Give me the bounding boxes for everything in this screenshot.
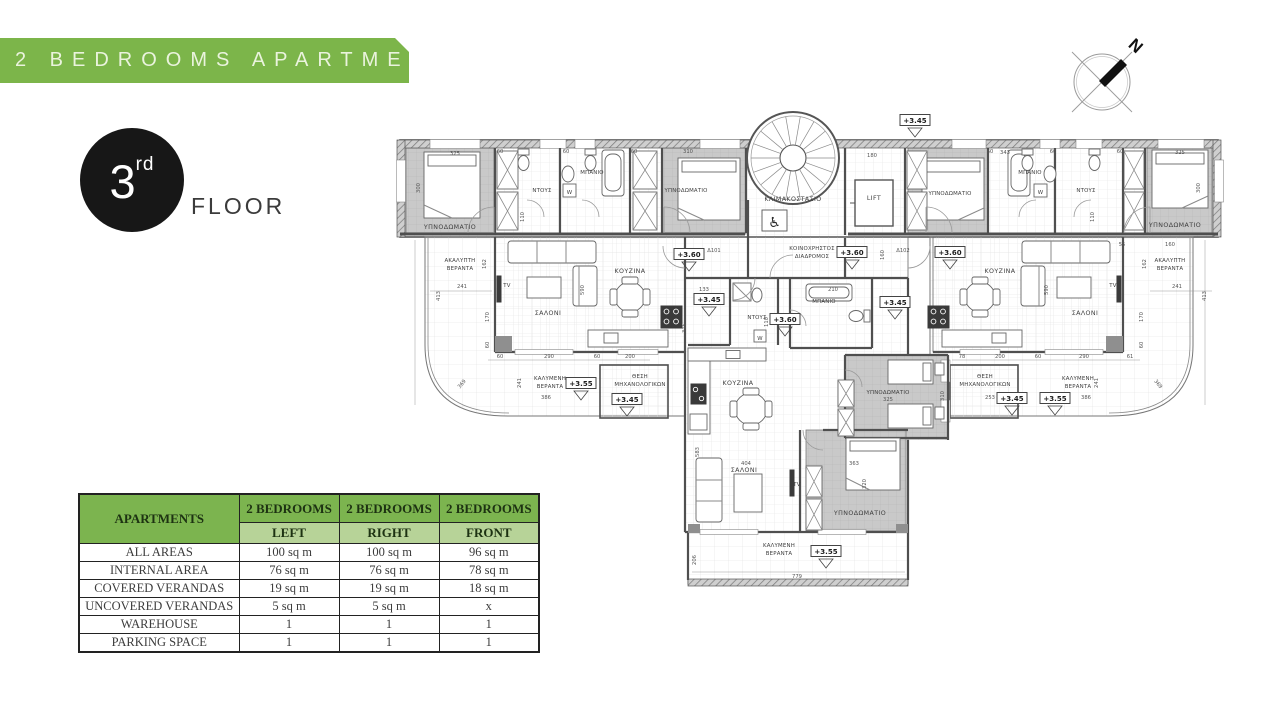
table-row: PARKING SPACE 1 1 1	[79, 634, 539, 653]
dim: 110	[520, 212, 526, 222]
room-label-kitchen: ΚΟΥΖΙΝΑ	[615, 268, 646, 275]
dim: 300	[416, 183, 422, 193]
room-label-bathroom: ΜΠΑΝΙΟ	[812, 299, 835, 305]
dim: 60	[1050, 149, 1057, 155]
compass-north-label: N	[1125, 35, 1147, 57]
dim: 60	[631, 149, 638, 155]
cell-value: 1	[239, 616, 339, 634]
dim: 60	[987, 149, 994, 155]
compass-needle	[1099, 59, 1127, 87]
dim: 779	[792, 574, 802, 580]
dim: 290	[1079, 354, 1089, 360]
svg-text:+3.45: +3.45	[883, 299, 906, 307]
room-label-covered-veranda: ΚΑΛΥΜΕΝΗ	[1062, 376, 1094, 382]
table-col-header: 2 BEDROOMS	[439, 494, 539, 523]
dim: 325	[883, 397, 893, 403]
elevation-marker: +3.45	[900, 115, 930, 138]
dim: 413	[436, 291, 442, 301]
dim: 60	[594, 354, 601, 360]
dim: 162	[482, 259, 488, 269]
room-label-corridor: ΔΙΑΔΡΟΜΟΣ	[795, 254, 830, 260]
row-label: PARKING SPACE	[79, 634, 239, 653]
room-label-bedroom: ΥΠΝΟΔΩΜΑΤΙΟ	[927, 191, 971, 197]
svg-text:+3.60: +3.60	[840, 249, 863, 257]
room-label-corridor: ΚΟΙΝΟΧΡΗΣΤΟΣ	[789, 246, 835, 252]
tv-label: TV	[792, 482, 800, 488]
room-label-uncovered-veranda: ΒΕΡΑΝΤΑ	[447, 266, 474, 272]
table-corner-header: APARTMENTS	[79, 494, 239, 544]
dim: 110	[764, 317, 770, 327]
cell-value: 1	[439, 634, 539, 653]
cell-value: 19 sq m	[239, 580, 339, 598]
dim: 241	[517, 378, 523, 388]
room-label-shower: ΝΤΟΥΣ	[1076, 188, 1096, 194]
dim: 325	[1175, 150, 1185, 156]
table-subheader-right: RIGHT	[339, 523, 439, 544]
dim: 404	[741, 461, 752, 467]
table-row: COVERED VERANDAS 19 sq m 19 sq m 18 sq m	[79, 580, 539, 598]
dim: 241	[457, 284, 467, 290]
dim: 253	[985, 395, 995, 401]
room-label-covered-veranda: ΚΑΛΥΜΕΝΗ	[534, 376, 566, 382]
title-banner: 2 BEDROOMS APARTMENTS	[0, 38, 409, 83]
row-label: INTERNAL AREA	[79, 562, 239, 580]
room-label-uncovered-veranda: ΒΕΡΑΝΤΑ	[1157, 266, 1184, 272]
room-label-bathroom: ΜΠΑΝΙΟ	[580, 170, 603, 176]
room-label-bedroom: ΥΠΝΟΔΩΜΑΤΙΟ	[423, 224, 476, 231]
compass-icon: N	[1066, 30, 1150, 118]
floor-label: FLOOR	[191, 193, 285, 220]
page-title: 2 BEDROOMS APARTMENTS	[15, 49, 477, 72]
room-label-living: ΣΑΛΟΝΙ	[535, 310, 562, 317]
dim: 60	[1035, 354, 1042, 360]
table-subheader-front: FRONT	[439, 523, 539, 544]
dim: 180	[867, 153, 877, 159]
cell-value: 5 sq m	[339, 598, 439, 616]
door-tag: Δ101	[707, 248, 720, 254]
room-label-uncovered-veranda: ΑΚΑΛΥΠΤΗ	[445, 258, 476, 264]
dim: 61	[1127, 354, 1134, 360]
room-label-bedroom: ΥΠΝΟΔΩΜΑΤΙΟ	[663, 188, 707, 194]
dim: 210	[828, 287, 838, 293]
dim: 583	[695, 447, 701, 457]
dim: 290	[544, 354, 554, 360]
room-label-bedroom: ΥΠΝΟΔΩΜΑΤΙΟ	[1148, 222, 1201, 229]
floor-plan-page: 2 BEDROOMS APARTMENTS 3rd FLOOR N	[0, 0, 1280, 720]
floor-ordinal: rd	[136, 154, 155, 175]
dim: 200	[995, 354, 1005, 360]
dim: 310	[683, 149, 693, 155]
dim: 110	[1090, 212, 1096, 222]
dim: 60	[497, 149, 504, 155]
dim: 241	[1094, 378, 1100, 388]
lift-car	[855, 180, 893, 226]
dim: 133	[699, 287, 709, 293]
table-col-header: 2 BEDROOMS	[339, 494, 439, 523]
cell-value: 1	[339, 616, 439, 634]
svg-text:+3.45: +3.45	[1000, 395, 1023, 403]
floor-badge: 3rd	[80, 128, 184, 232]
table-subheader-left: LEFT	[239, 523, 339, 544]
dim: 60	[1139, 342, 1145, 349]
apartments-table: APARTMENTS 2 BEDROOMS 2 BEDROOMS 2 BEDRO…	[78, 493, 540, 653]
room-label-living: ΣΑΛΟΝΙ	[1072, 310, 1099, 317]
cell-value: 1	[339, 634, 439, 653]
cell-value: 18 sq m	[439, 580, 539, 598]
cell-value: 19 sq m	[339, 580, 439, 598]
room-label-shower: ΝΤΟΥΣ	[532, 188, 552, 194]
dim: 590	[580, 285, 586, 295]
dim: 78	[959, 354, 966, 360]
washer-label: W	[1038, 190, 1044, 196]
table-col-header: 2 BEDROOMS	[239, 494, 339, 523]
table-row: UNCOVERED VERANDAS 5 sq m 5 sq m x	[79, 598, 539, 616]
room-label-mech: ΜΗΧΑΝΟΛΟΓΙΚΩΝ	[614, 382, 665, 388]
room-label-bedroom: ΥΠΝΟΔΩΜΑΤΙΟ	[833, 510, 886, 517]
dim: 60	[563, 149, 570, 155]
dim: 310	[940, 391, 946, 401]
washer-label: W	[567, 190, 573, 196]
room-label-bedroom: ΥΠΝΟΔΩΜΑΤΙΟ	[865, 390, 909, 396]
room-label-uncovered-veranda: ΑΚΑΛΥΠΤΗ	[1155, 258, 1186, 264]
svg-text:+3.45: +3.45	[697, 296, 720, 304]
dim: 162	[1142, 259, 1148, 269]
svg-text:+3.45: +3.45	[903, 117, 926, 125]
dim: 55	[1119, 242, 1126, 248]
cell-value: 1	[239, 634, 339, 653]
dim: 241	[1172, 284, 1182, 290]
dim: 170	[485, 312, 491, 322]
row-label: ALL AREAS	[79, 544, 239, 562]
room-label-covered-veranda: ΒΕΡΑΝΤΑ	[537, 384, 564, 390]
door-tag: Δ102	[896, 248, 909, 254]
svg-text:+3.55: +3.55	[1043, 395, 1066, 403]
dim: 325	[450, 151, 460, 157]
tv-label: TV	[1108, 283, 1116, 289]
dim: 343	[1000, 150, 1010, 156]
cell-value: 100 sq m	[239, 544, 339, 562]
row-label: COVERED VERANDAS	[79, 580, 239, 598]
dim: 160	[880, 250, 886, 260]
dim: 386	[1081, 395, 1091, 401]
room-label-mech: ΜΗΧΑΝΟΛΟΓΙΚΩΝ	[959, 382, 1010, 388]
svg-text:+3.45: +3.45	[615, 396, 638, 404]
dim: 300	[1196, 183, 1202, 193]
wheelchair-icon: ♿	[768, 215, 781, 231]
dim: 160	[1165, 242, 1175, 248]
washer-label: W	[757, 336, 763, 342]
cell-value: 76 sq m	[339, 562, 439, 580]
row-label: WAREHOUSE	[79, 616, 239, 634]
room-label-covered-veranda: ΚΑΛΥΜΕΝΗ	[763, 543, 795, 549]
dim: 200	[625, 354, 635, 360]
cell-value: 76 sq m	[239, 562, 339, 580]
cell-value: 1	[439, 616, 539, 634]
svg-text:+3.55: +3.55	[814, 548, 837, 556]
room-label-mech: ΘΕΣΗ	[632, 374, 648, 380]
room-label-bathroom: ΜΠΑΝΙΟ	[1018, 170, 1041, 176]
table-row: INTERNAL AREA 76 sq m 76 sq m 78 sq m	[79, 562, 539, 580]
room-label-covered-veranda: ΒΕΡΑΝΤΑ	[1065, 384, 1092, 390]
room-label-kitchen: ΚΟΥΖΙΝΑ	[723, 380, 754, 387]
svg-text:+3.60: +3.60	[677, 251, 700, 259]
dim: 386	[541, 395, 551, 401]
dim: 315	[682, 323, 688, 333]
tv-label: TV	[502, 283, 510, 289]
dim: 60	[485, 342, 491, 349]
dim: 206	[692, 555, 698, 565]
dim: 60	[1117, 149, 1124, 155]
cell-value: 96 sq m	[439, 544, 539, 562]
room-label-covered-veranda: ΒΕΡΑΝΤΑ	[766, 551, 793, 557]
dim: 60	[497, 354, 504, 360]
svg-text:+3.60: +3.60	[773, 316, 796, 324]
cell-value: x	[439, 598, 539, 616]
dim: 320	[862, 479, 868, 489]
dim: 170	[1139, 312, 1145, 322]
room-label-stairwell: ΚΛΙΜΑΚΟΣΤΑΣΙΟ	[764, 196, 821, 203]
cell-value: 78 sq m	[439, 562, 539, 580]
room-label-kitchen: ΚΟΥΖΙΝΑ	[985, 268, 1016, 275]
room-label-living: ΣΑΛΟΝΙ	[731, 467, 758, 474]
table-row: ALL AREAS 100 sq m 100 sq m 96 sq m	[79, 544, 539, 562]
table-row: WAREHOUSE 1 1 1	[79, 616, 539, 634]
dim: 590	[1044, 285, 1050, 295]
dim: 363	[849, 461, 859, 467]
cell-value: 5 sq m	[239, 598, 339, 616]
svg-text:+3.55: +3.55	[569, 380, 592, 388]
floor-number: 3rd	[109, 155, 154, 205]
cell-value: 100 sq m	[339, 544, 439, 562]
room-label-mech: ΘΕΣΗ	[977, 374, 993, 380]
room-label-lift: LIFT	[867, 195, 881, 202]
svg-text:+3.60: +3.60	[938, 249, 961, 257]
dim: 413	[1202, 291, 1208, 301]
row-label: UNCOVERED VERANDAS	[79, 598, 239, 616]
